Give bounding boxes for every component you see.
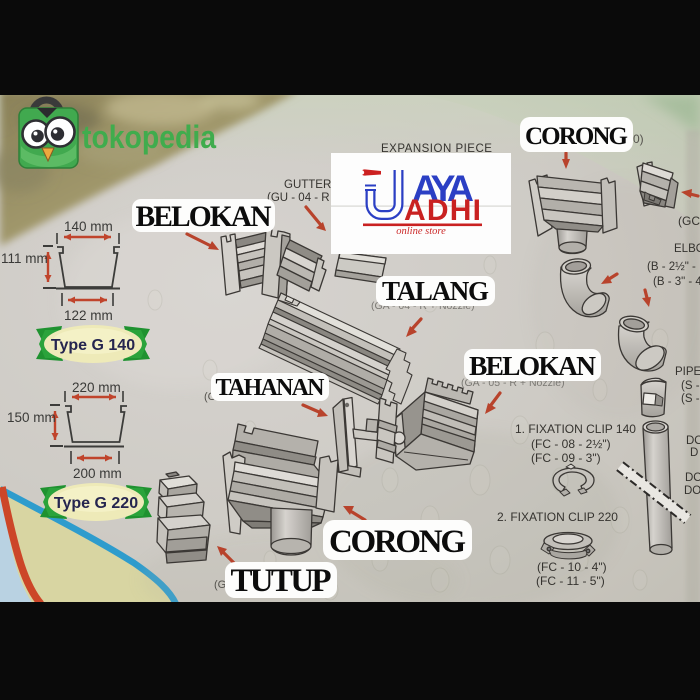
svg-text:tokopedia: tokopedia	[82, 119, 216, 155]
svg-text:(S -: (S -	[681, 393, 700, 405]
svg-text:DO: DO	[686, 435, 700, 447]
svg-text:Type G 220: Type G 220	[54, 495, 138, 512]
svg-text:(FC - 11 - 5"): (FC - 11 - 5")	[536, 574, 605, 588]
svg-text:GUTTER: GUTTER	[284, 179, 331, 191]
svg-text:CORONG: CORONG	[329, 524, 466, 560]
svg-text:(S -: (S -	[681, 380, 700, 392]
svg-text:2. FIXATION CLIP 220: 2. FIXATION CLIP 220	[497, 510, 618, 524]
svg-text:Type G 140: Type G 140	[51, 337, 135, 354]
svg-text:TALANG: TALANG	[382, 276, 489, 306]
svg-text:DO: DO	[685, 472, 700, 484]
svg-text:TAHANAN: TAHANAN	[216, 375, 326, 401]
svg-text:PIPE: PIPE	[675, 366, 700, 378]
svg-text:111 mm: 111 mm	[1, 251, 48, 266]
svg-text:1. FIXATION CLIP 140: 1. FIXATION CLIP 140	[515, 422, 636, 436]
svg-text:DO: DO	[684, 485, 700, 497]
svg-text:220 mm: 220 mm	[72, 380, 121, 395]
svg-text:BELOKAN: BELOKAN	[136, 201, 272, 233]
svg-text:D: D	[690, 447, 698, 459]
svg-text:(FC - 08 - 2½"): (FC - 08 - 2½")	[531, 437, 611, 451]
svg-text:(B - 3" - 4: (B - 3" - 4	[653, 276, 700, 288]
svg-text:ADHI: ADHI	[404, 194, 481, 227]
svg-text:(GC: (GC	[678, 214, 700, 228]
svg-text:(GU - 04 - R: (GU - 04 - R	[267, 192, 330, 204]
svg-text:online store: online store	[396, 226, 446, 237]
svg-text:122 mm: 122 mm	[64, 308, 113, 323]
svg-text:ELBO: ELBO	[674, 243, 700, 255]
svg-text:(B - 2½" -: (B - 2½" -	[647, 261, 696, 273]
svg-text:CORONG: CORONG	[525, 123, 628, 150]
svg-text:140 mm: 140 mm	[64, 219, 113, 234]
svg-text:(FC - 09 - 3"): (FC - 09 - 3")	[531, 451, 601, 465]
svg-text:200 mm: 200 mm	[73, 466, 122, 481]
svg-text:BELOKAN: BELOKAN	[469, 350, 596, 381]
svg-text:(FC - 10 - 4"): (FC - 10 - 4")	[537, 560, 607, 574]
svg-text:150 mm: 150 mm	[7, 410, 56, 425]
svg-text:TUTUP: TUTUP	[231, 563, 332, 599]
svg-text:0): 0)	[633, 132, 644, 146]
svg-text:(G: (G	[214, 579, 226, 591]
